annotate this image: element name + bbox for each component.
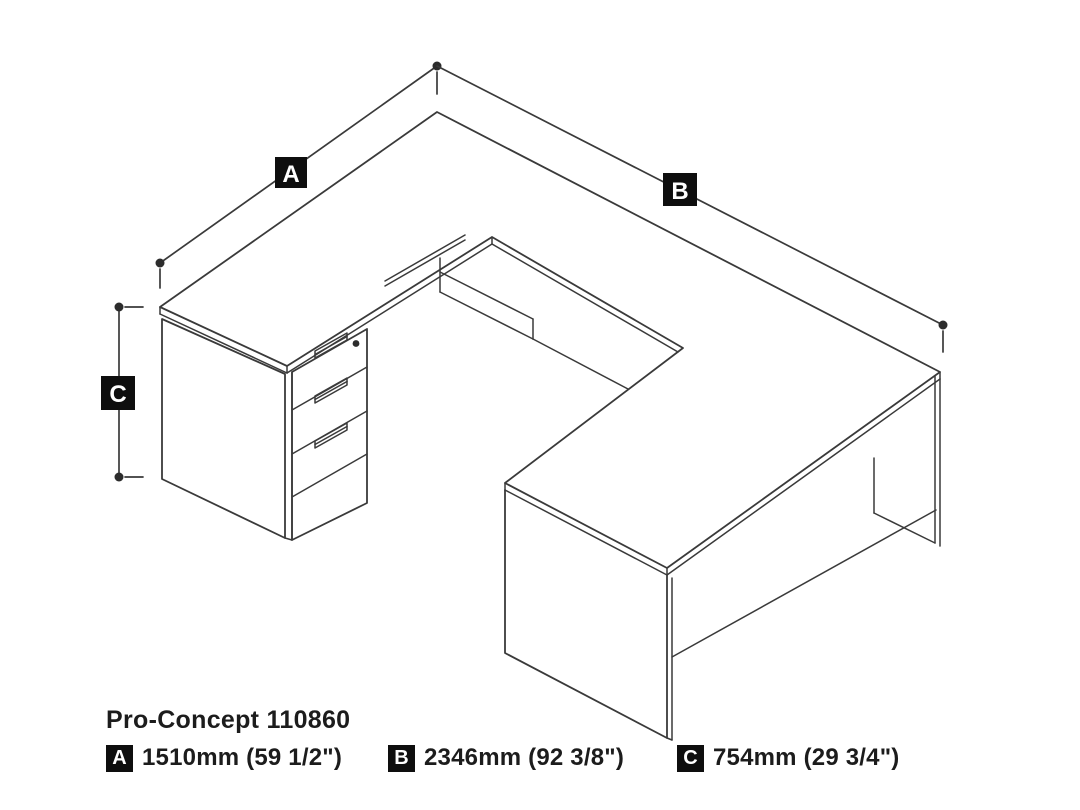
legend-badge-c: C	[677, 745, 704, 772]
label-b-text: B	[671, 178, 688, 205]
legend-badge-b: B	[388, 745, 415, 772]
label-c-text: C	[109, 381, 126, 408]
legend-item-c: C 754mm (29 3/4")	[677, 744, 899, 772]
legend-value-b: 2346mm (92 3/8")	[424, 744, 624, 772]
dimension-label-a: A	[275, 157, 307, 188]
drawer-handle-bottom	[315, 423, 347, 448]
dimension-label-c: C	[101, 376, 135, 410]
legend-badge-a: A	[106, 745, 133, 772]
legend-value-c: 754mm (29 3/4")	[713, 744, 899, 772]
legend-item-b: B 2346mm (92 3/8")	[388, 744, 624, 772]
legend-value-a: 1510mm (59 1/2")	[142, 744, 342, 772]
dimension-label-b: B	[663, 173, 697, 206]
product-title: Pro-Concept 110860	[106, 706, 350, 735]
legend-item-a: A 1510mm (59 1/2")	[106, 744, 342, 772]
desk-isometric-drawing: A B C	[0, 0, 1080, 810]
lock-icon	[353, 340, 360, 347]
right-desk	[505, 376, 940, 740]
drawer-pedestal	[162, 319, 367, 540]
label-a-text: A	[282, 161, 299, 188]
furniture-spec-sheet: A B C Pro-Concept 110860 A 1510mm (59 1/…	[0, 0, 1080, 810]
